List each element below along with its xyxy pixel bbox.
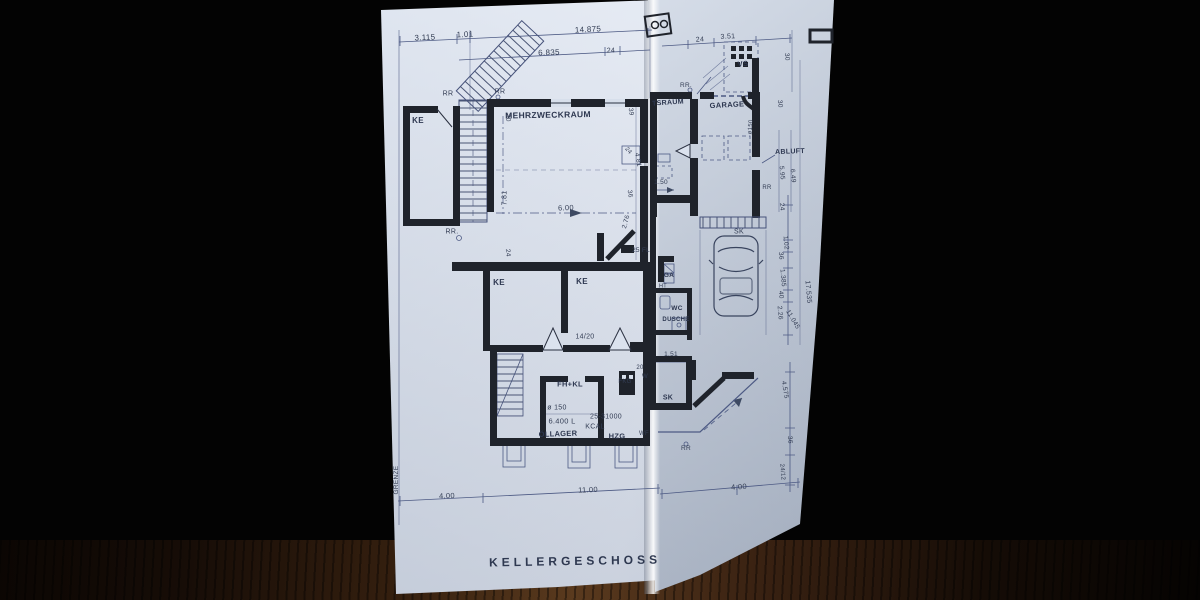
label-rr: RR (762, 185, 771, 191)
label-14-20: 14/20 (575, 334, 594, 341)
label-30: 30 (782, 53, 789, 61)
label-6-400-l: 6.400 L (548, 417, 575, 425)
label-1-01: 1.01 (456, 31, 473, 40)
label-24: 24 (623, 146, 632, 155)
label-rr-: RR. (680, 83, 692, 90)
label-2-26: 2.26 (775, 306, 783, 320)
label-ga: GA (664, 273, 674, 280)
annotation-layer: 3.1151.0114.8756.83524RRRRKEMEHRZWECKRAU… (0, 0, 1200, 600)
label-11-00: 11.00 (578, 486, 598, 494)
label-hzg: HZG (609, 432, 626, 440)
label-2-76: 2.76 (622, 214, 632, 229)
label-6-49: 6.49 (788, 169, 796, 183)
label-öllager: ÖLLAGER (538, 430, 577, 439)
label-ke: KE (576, 278, 588, 286)
label-7-81: 7.81 (502, 191, 509, 206)
label-fh-kl: FH+KL (557, 380, 583, 388)
label-fkg: FKG (618, 379, 631, 385)
label-sk: SK (663, 395, 673, 402)
label-20: 20 (636, 365, 643, 371)
label-24: 24 (607, 47, 616, 54)
label-grenze: GRENZE (394, 466, 401, 495)
label-24: 24 (696, 36, 705, 43)
label-vs: VS (737, 60, 748, 68)
label-dusche: DUSCHE (662, 317, 689, 323)
label-6-00: 6.00 (558, 204, 574, 212)
label-rr-: RR. (446, 229, 459, 236)
label-40: 40 (776, 291, 783, 299)
label-39: 39 (626, 108, 634, 117)
label-11-045: 11.045 (784, 309, 800, 331)
label-6-835: 6.835 (538, 49, 560, 58)
label-17-535: 17.535 (804, 280, 813, 304)
label-1-385: 1.385 (778, 269, 786, 287)
label-36: 36 (776, 252, 783, 260)
label-25-fl: 25 FL (632, 248, 650, 255)
label-rr: RR (495, 89, 506, 96)
label-4-81: 4.81 (633, 153, 642, 168)
label-36: 36 (785, 436, 792, 444)
label-4-00: 4.00 (731, 483, 747, 492)
label-25-31000: 25-31000 (590, 414, 622, 421)
label-36: 36 (625, 190, 633, 199)
label-30: 30 (503, 114, 510, 122)
label-sk: SK (734, 229, 744, 236)
label-1-02: 1.02 (781, 236, 789, 250)
label-ht: HT (659, 284, 667, 290)
label-kcal: KCAL (585, 424, 605, 431)
label-1-50: 1.50 (654, 180, 668, 187)
label-w: W (642, 374, 648, 380)
label-rr: RR (443, 91, 454, 98)
label-wc: WC (671, 306, 682, 313)
label-tsraum: TSRAUM (652, 98, 684, 107)
label-abluft: ABLUFT (775, 148, 805, 156)
label-ke: KE (493, 279, 505, 287)
plan-title: KELLERGESCHOSS (489, 553, 661, 570)
label-3-115: 3.115 (414, 33, 435, 42)
label-3-51: 3.51 (720, 33, 735, 41)
label-24: 24 (777, 203, 784, 211)
label-14-875: 14.875 (575, 25, 602, 34)
label-24-12: 24/12 (778, 464, 785, 481)
label-wf: WF (639, 431, 649, 437)
label-mehrzweckraum: MEHRZWECKRAUM (505, 110, 591, 120)
label-rr: RR (681, 446, 691, 453)
label-24: 24 (503, 249, 510, 257)
label-4-00: 4.00 (439, 492, 455, 500)
label-30: 30 (775, 100, 782, 108)
label--150: ø 150 (547, 405, 566, 412)
label-garage: GARAGE (709, 100, 744, 109)
label-5-95: 5.95 (777, 166, 785, 180)
label-1-51: 1.51 (664, 352, 678, 359)
label-ke: KE (412, 117, 424, 125)
label--150: ø150 (747, 119, 754, 134)
label-4-575: 4.575 (779, 381, 788, 400)
floorplan-photo: 3.1151.0114.8756.83524RRRRKEMEHRZWECKRAU… (0, 0, 1200, 600)
